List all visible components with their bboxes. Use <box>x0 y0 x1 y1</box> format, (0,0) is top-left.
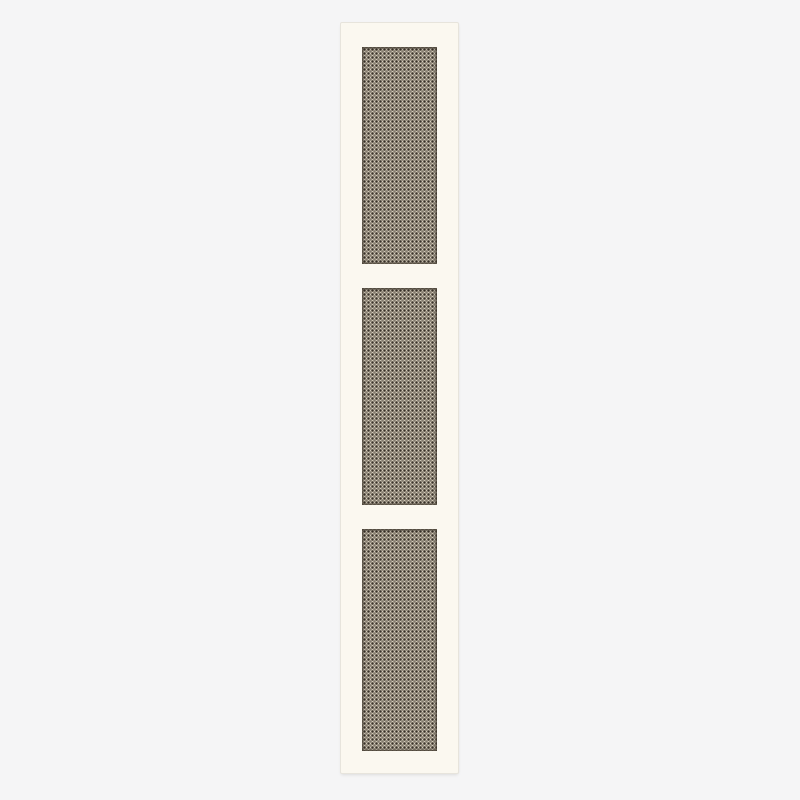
product-image-stage <box>0 0 800 800</box>
cane-panel-middle <box>362 288 437 505</box>
cane-panel-bottom <box>362 529 437 751</box>
cabinet-door <box>341 23 458 773</box>
cane-panel-top <box>362 47 437 264</box>
